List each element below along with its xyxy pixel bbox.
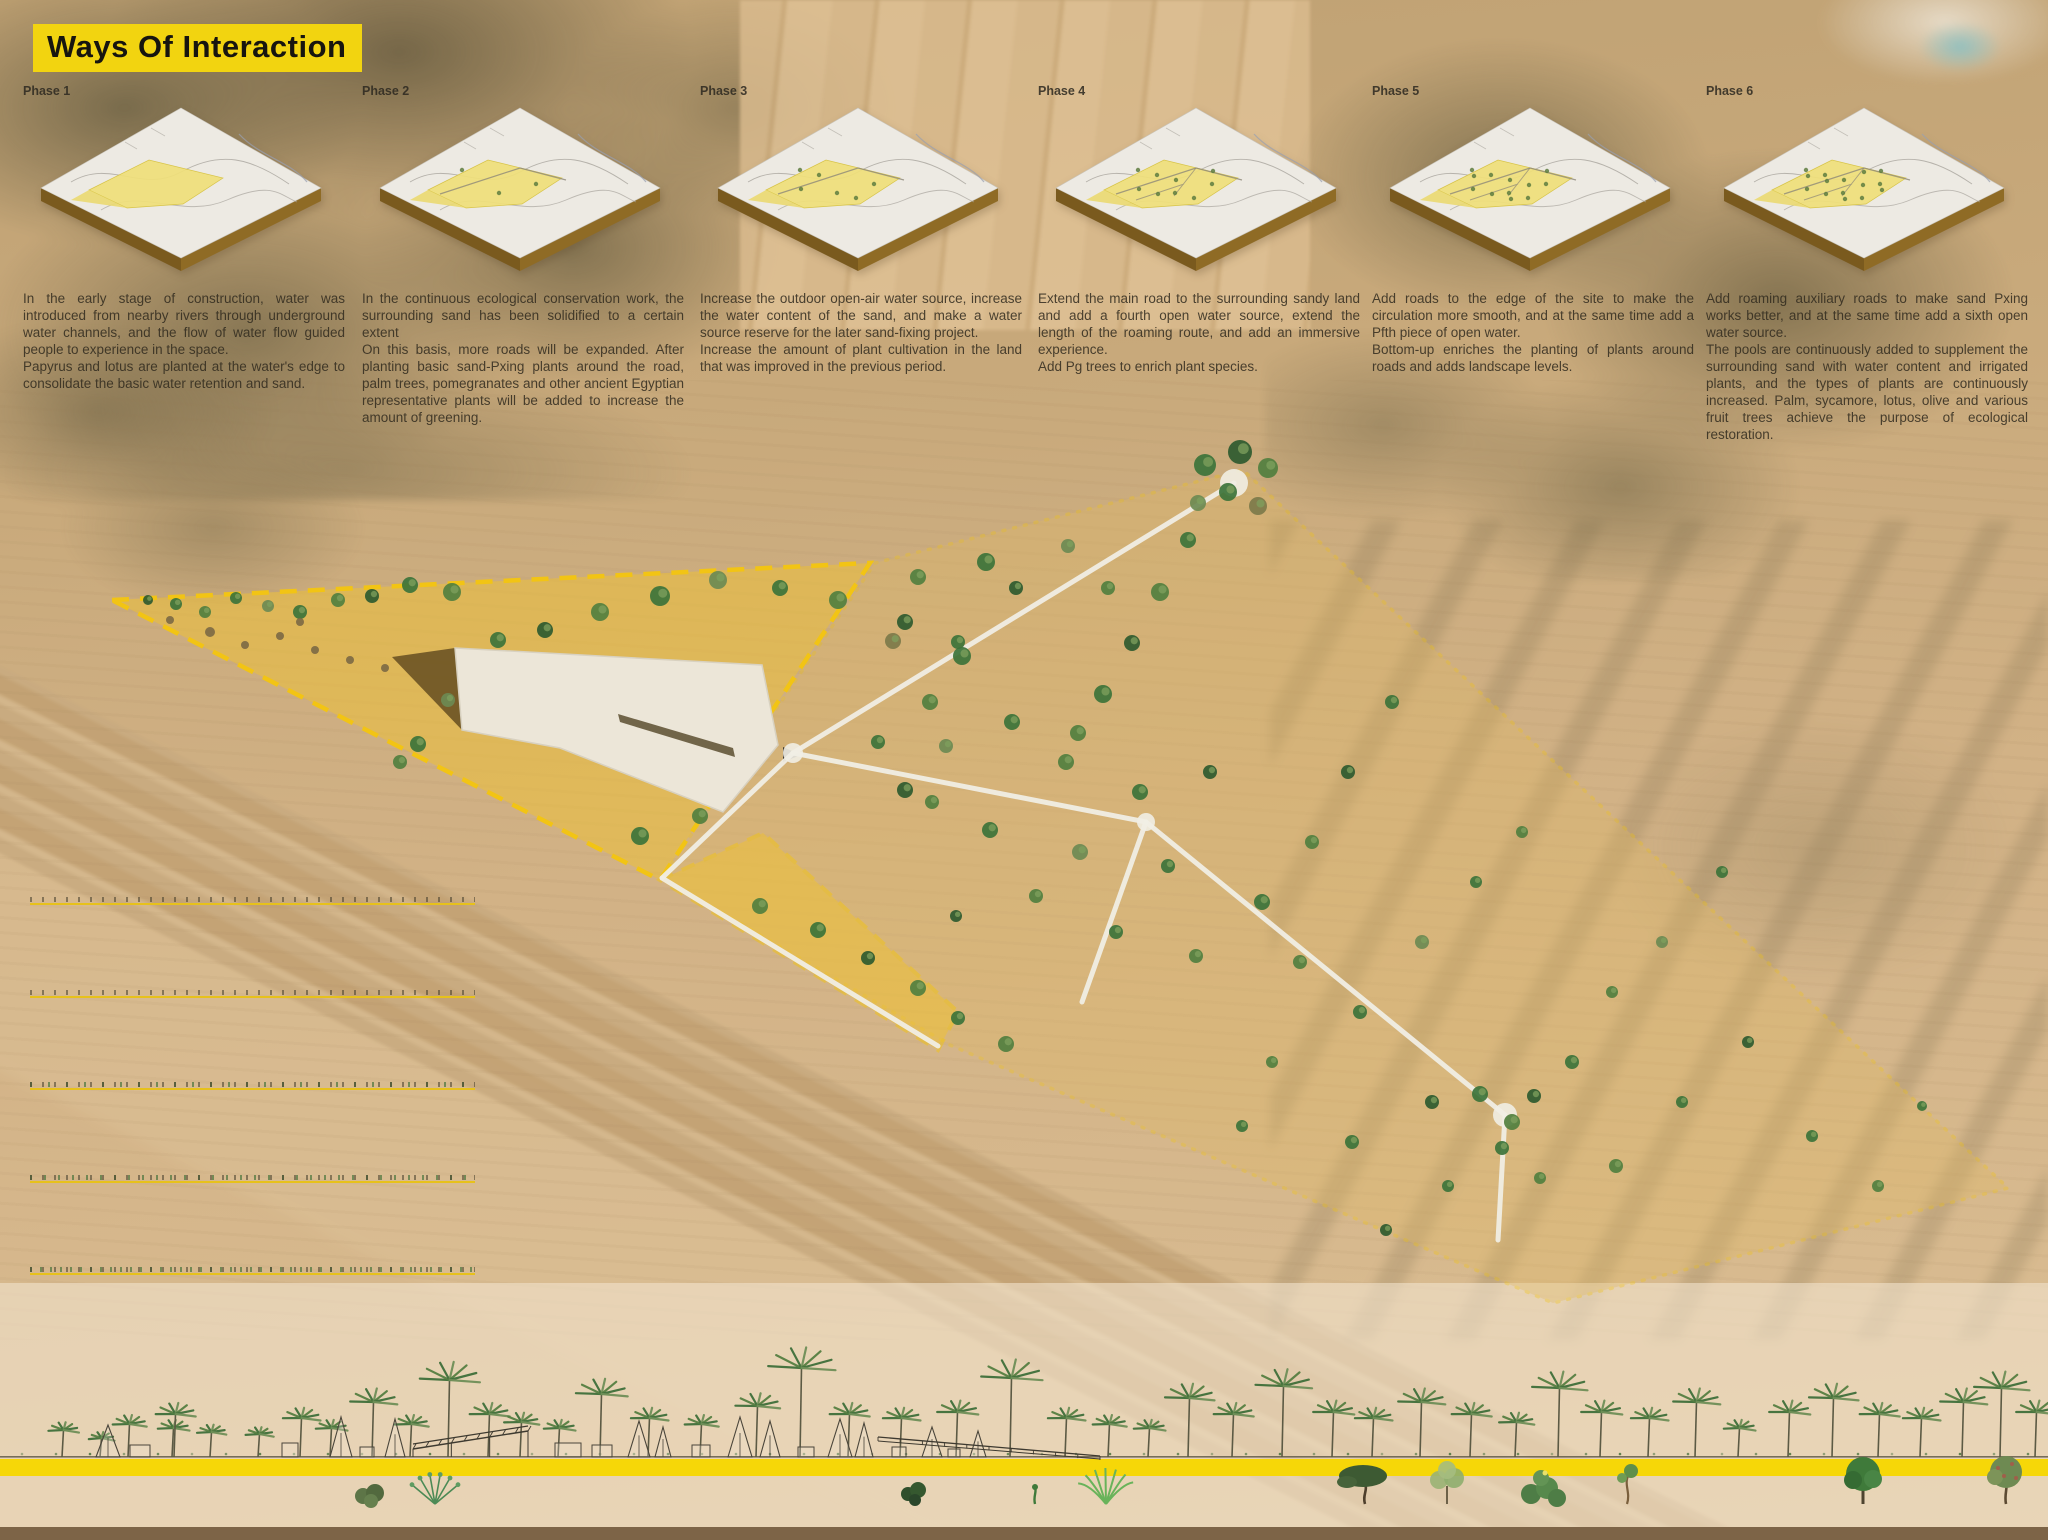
phase-description: In the early stage of construction, wate… <box>23 290 345 392</box>
phase-label: Phase 4 <box>1038 84 1360 98</box>
title-box: Ways Of Interaction <box>33 24 362 72</box>
bottom-border-bar <box>0 1527 2048 1540</box>
phase-column: Phase 2 In the continuous ecological con… <box>362 84 684 484</box>
phase-description: Add roaming auxiliary roads to make sand… <box>1706 290 2028 443</box>
phase-label: Phase 3 <box>700 84 1022 98</box>
phase-isometric-diagram <box>1046 98 1346 288</box>
section-sketch-line <box>30 1267 475 1275</box>
section-sketch-line <box>30 990 475 998</box>
presentation-board: Ways Of Interaction Phase 1 In the early… <box>0 0 2048 1540</box>
phase-isometric-diagram <box>1380 98 1680 288</box>
phase-isometric-diagram <box>31 98 331 288</box>
phase-label: Phase 6 <box>1706 84 2028 98</box>
phase-column: Phase 4 Extend the main road to the surr… <box>1038 84 1360 484</box>
phase-column: Phase 3 Increase the outdoor open-air wa… <box>700 84 1022 484</box>
phase-column: Phase 6 Add roaming auxiliary roads to m… <box>1706 84 2028 484</box>
phase-description: Add roads to the edge of the site to mak… <box>1372 290 1694 375</box>
section-sketch-line <box>30 1082 475 1090</box>
phase-column: Phase 1 In the early stage of constructi… <box>23 84 345 484</box>
phase-isometric-diagram <box>1714 98 2014 288</box>
section-sketch-line <box>30 897 475 905</box>
section-sketch-line <box>30 1175 475 1183</box>
phase-description: In the continuous ecological conservatio… <box>362 290 684 426</box>
phase-description: Extend the main road to the surrounding … <box>1038 290 1360 375</box>
phase-label: Phase 2 <box>362 84 684 98</box>
phase-description: Increase the outdoor open-air water sour… <box>700 290 1022 375</box>
page-title: Ways Of Interaction <box>47 29 346 64</box>
phase-column: Phase 5 Add roads to the edge of the sit… <box>1372 84 1694 484</box>
phase-isometric-diagram <box>708 98 1008 288</box>
phase-label: Phase 1 <box>23 84 345 98</box>
phase-label: Phase 5 <box>1372 84 1694 98</box>
phase-isometric-diagram <box>370 98 670 288</box>
site-elevation-section <box>0 1280 2048 1540</box>
